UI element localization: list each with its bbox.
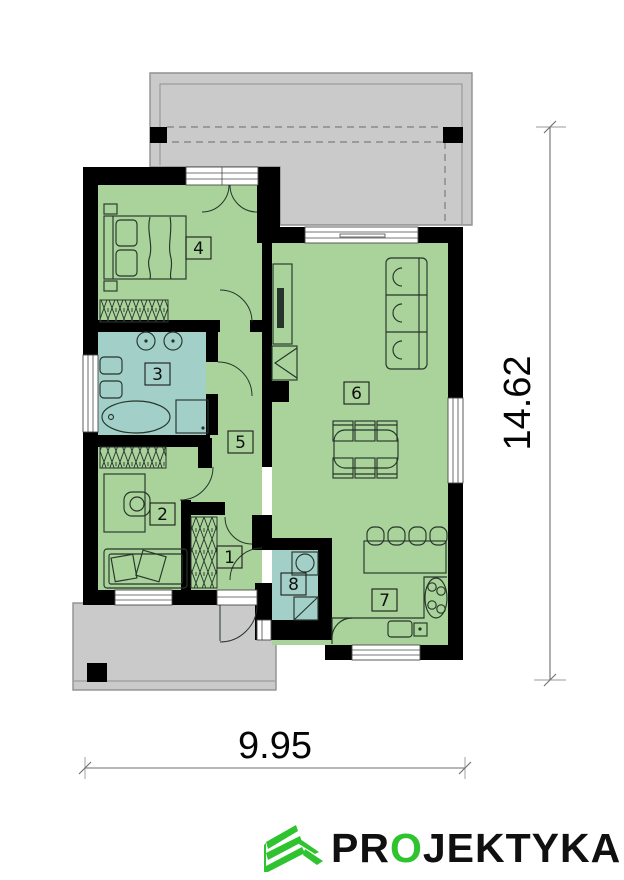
svg-text:2: 2 bbox=[157, 505, 168, 525]
wardrobe-office bbox=[100, 447, 166, 468]
logo: PROJEKTYKA bbox=[264, 825, 621, 872]
entrance-door-opening bbox=[217, 590, 257, 605]
wardrobe-hall bbox=[191, 517, 217, 588]
svg-text:6: 6 bbox=[351, 384, 362, 404]
dimension-height: 14.62 bbox=[497, 121, 566, 686]
floor-plan-drawing: 1 2 3 4 5 6 7 8 bbox=[0, 0, 624, 880]
window-living-right bbox=[448, 398, 463, 483]
svg-text:3: 3 bbox=[152, 365, 163, 385]
svg-text:9.95: 9.95 bbox=[238, 725, 312, 767]
window-bedroom-top bbox=[186, 167, 258, 185]
window-office-bottom bbox=[115, 590, 172, 605]
window-living-top bbox=[305, 227, 418, 243]
tv bbox=[277, 288, 284, 328]
floor-plan-page: 1 2 3 4 5 6 7 8 bbox=[0, 0, 624, 880]
chimney bbox=[272, 381, 289, 402]
svg-text:14.62: 14.62 bbox=[497, 355, 539, 450]
dimension-width: 9.95 bbox=[79, 725, 471, 779]
logo-wordmark: PROJEKTYKA bbox=[331, 825, 621, 871]
terrace-pillar-bottom bbox=[87, 663, 107, 682]
window-bathroom-left bbox=[83, 355, 98, 432]
wardrobe-bedroom bbox=[100, 300, 168, 322]
svg-text:7: 7 bbox=[379, 591, 390, 611]
svg-text:5: 5 bbox=[235, 433, 246, 453]
terrace-pillar-left bbox=[150, 127, 167, 143]
window-wc-terrace bbox=[257, 620, 271, 640]
terrace-pillar-right bbox=[443, 127, 463, 143]
svg-text:8: 8 bbox=[288, 575, 299, 595]
svg-text:1: 1 bbox=[224, 548, 235, 568]
window-kitchen-bottom bbox=[352, 645, 420, 660]
terrace-bottom bbox=[73, 603, 276, 690]
svg-text:4: 4 bbox=[193, 239, 204, 259]
projektyka-house-icon bbox=[264, 825, 323, 872]
entry-hall-furniture bbox=[191, 517, 217, 588]
